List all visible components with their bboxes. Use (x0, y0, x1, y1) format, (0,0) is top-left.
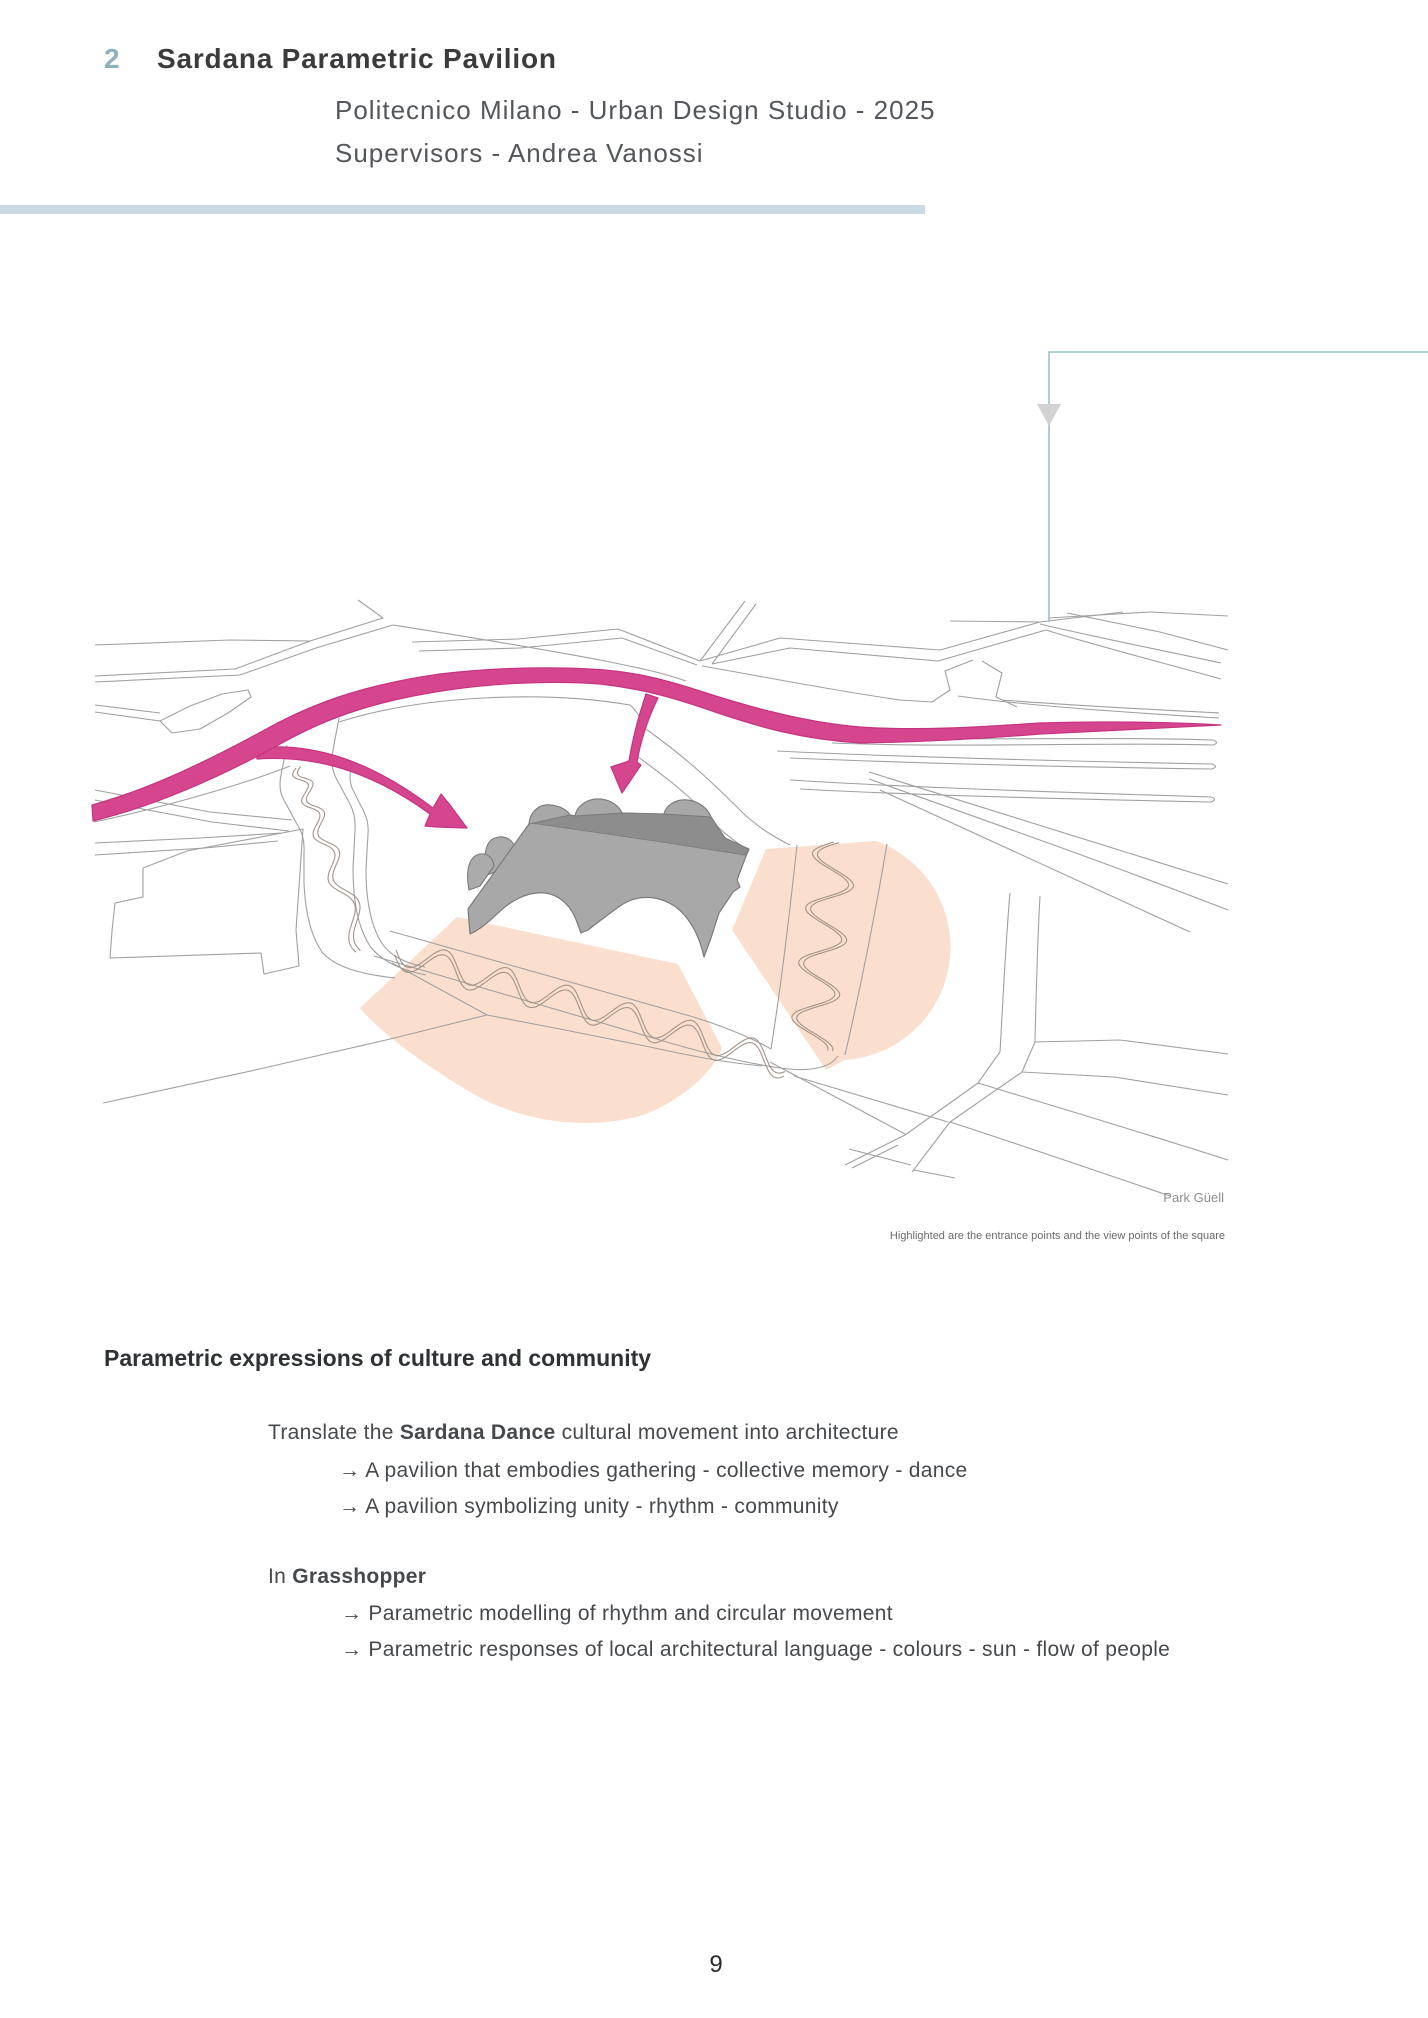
svg-text:Park Güell: Park Güell (1163, 1190, 1224, 1205)
svg-text:Highlighted are the entrance p: Highlighted are the entrance points and … (890, 1230, 1225, 1242)
